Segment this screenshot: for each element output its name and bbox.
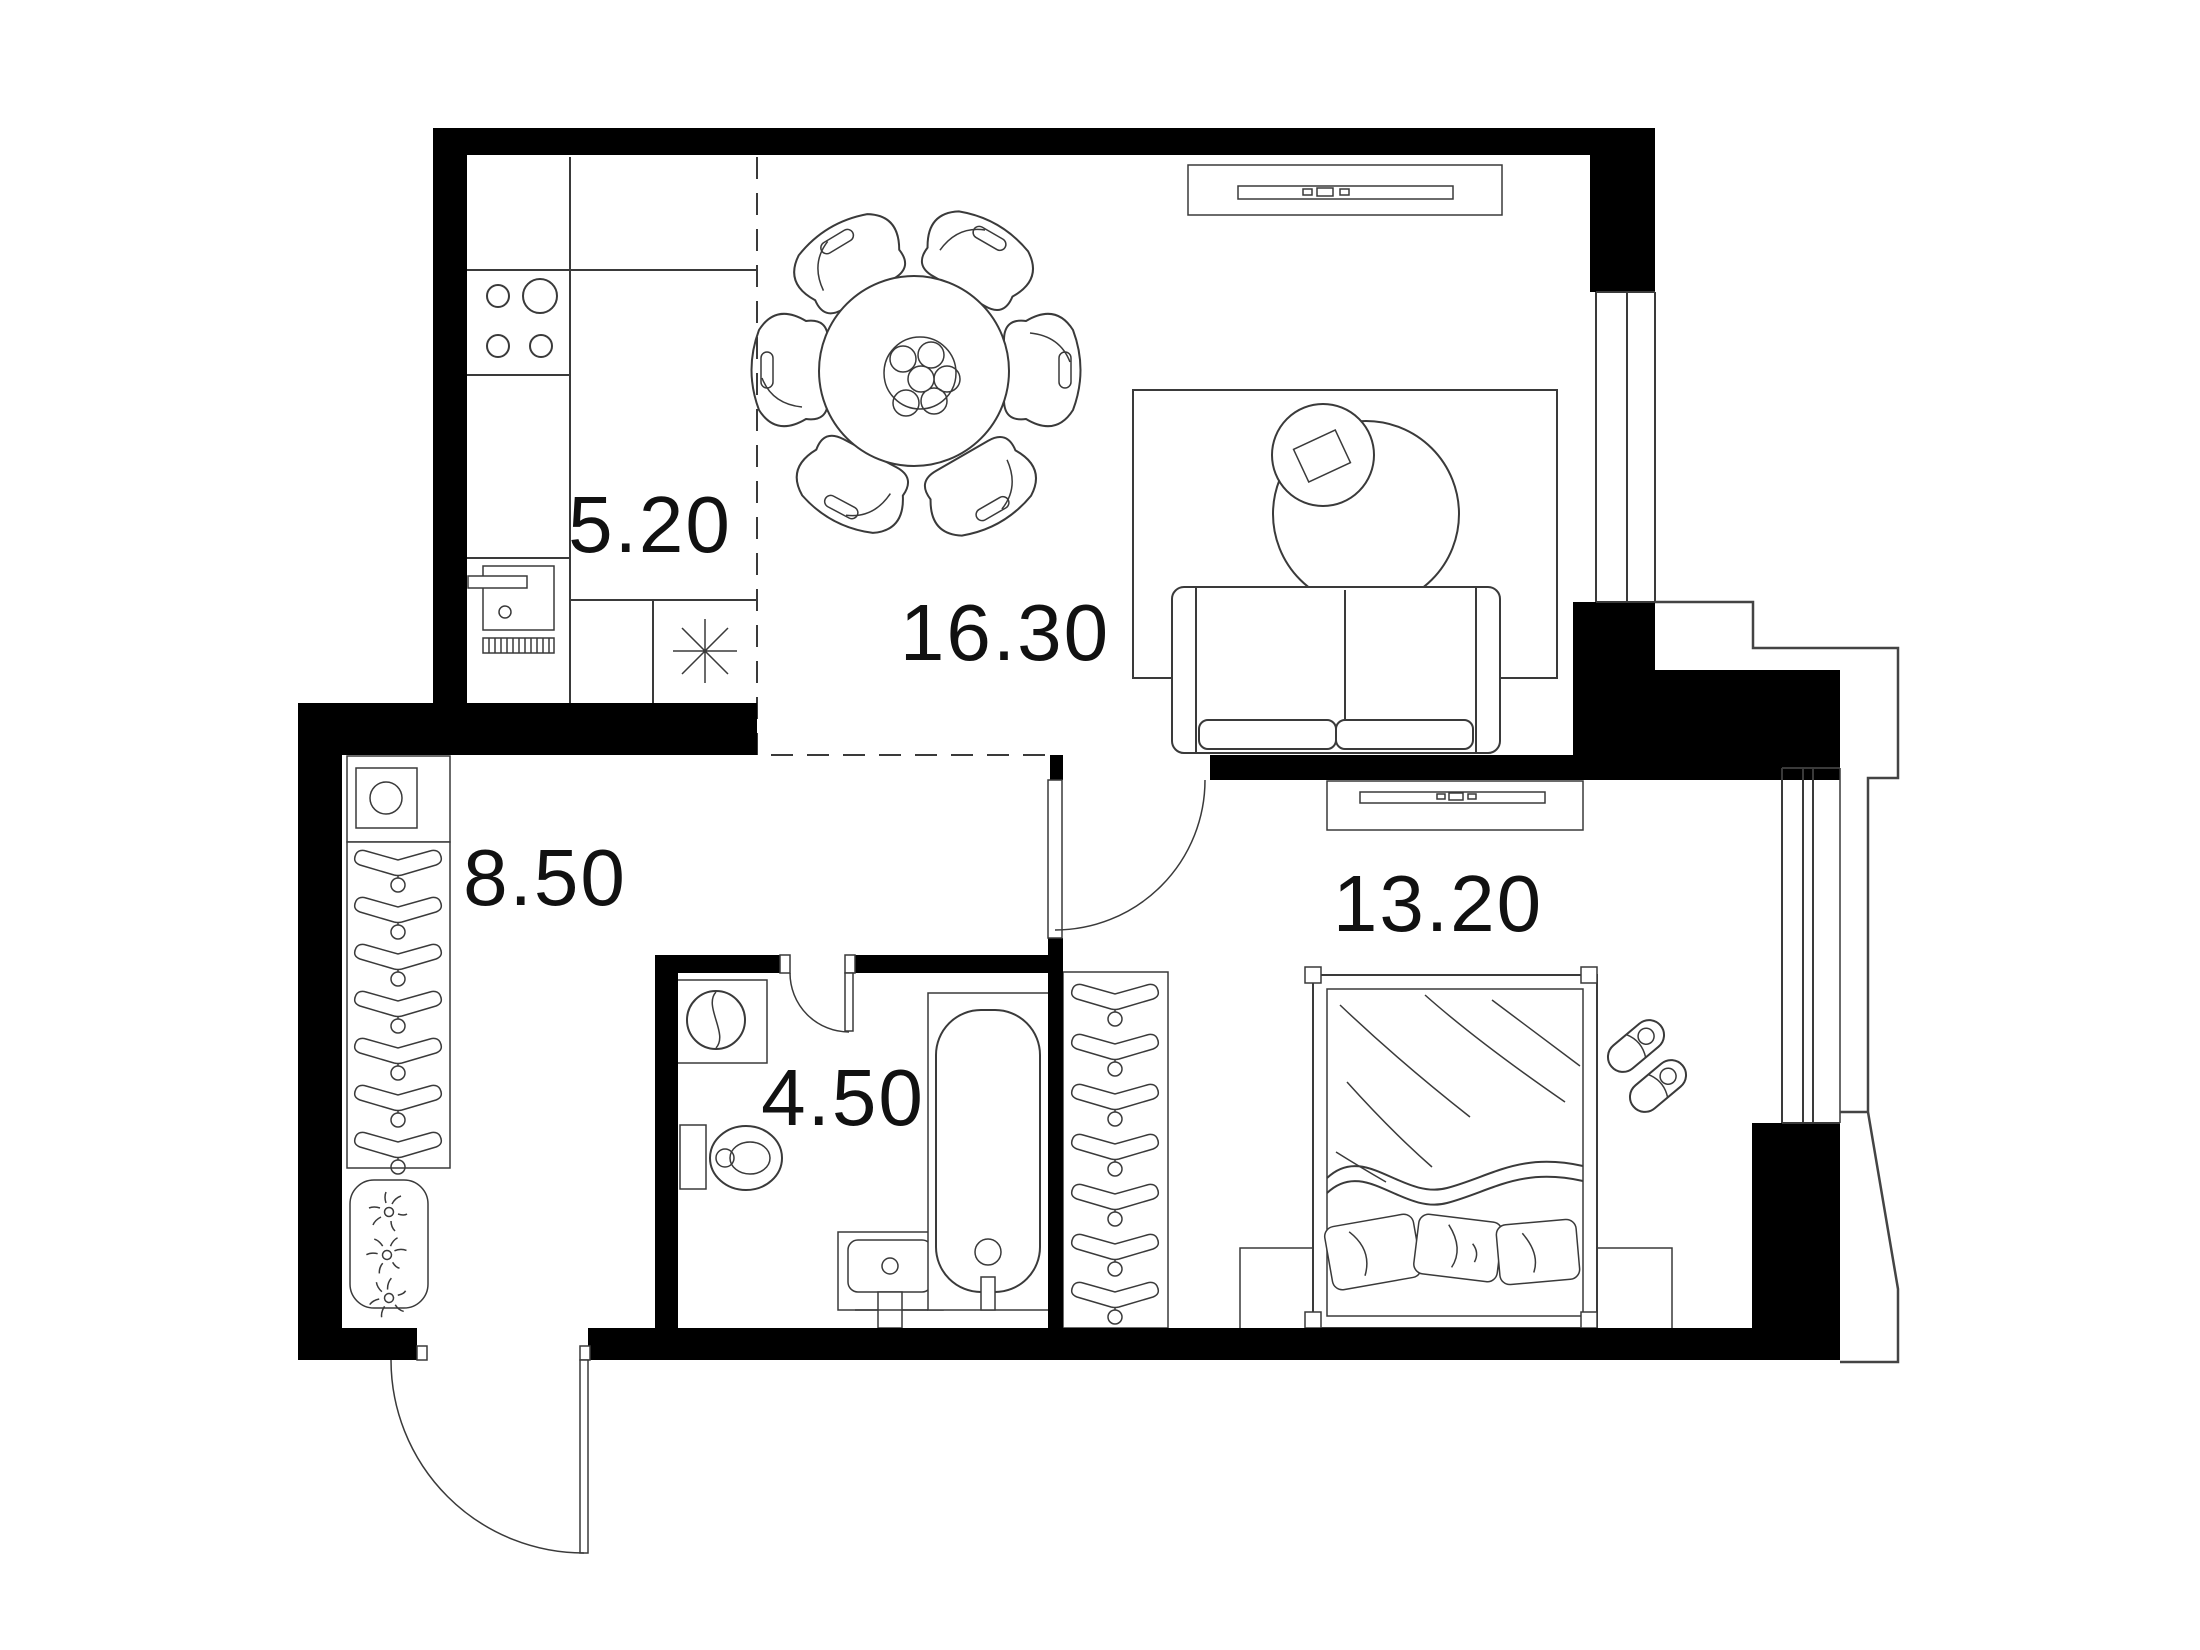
room-label-living-dining: 16.30	[900, 588, 1110, 677]
hallway-cabinet	[347, 756, 450, 842]
oven-icon	[468, 566, 554, 653]
tv-console-bedroom	[1327, 781, 1583, 830]
floor-plan-drawing: 5.20 16.30 8.50 4.50 13.20	[0, 0, 2200, 1650]
room-label-bedroom: 13.20	[1333, 859, 1543, 948]
sofa	[1172, 587, 1500, 753]
bed	[1240, 967, 1672, 1330]
entrance-door	[391, 1346, 590, 1553]
living-room-window	[1596, 292, 1655, 602]
chair-icon	[752, 314, 829, 426]
hallway-wardrobe	[347, 842, 450, 1174]
room-label-kitchen: 5.20	[568, 480, 732, 569]
pillow-icon	[1413, 1213, 1504, 1283]
stove-icon	[487, 279, 557, 357]
door-mat	[350, 1180, 428, 1324]
dining-set	[752, 197, 1081, 550]
bedroom-window	[1782, 768, 1840, 1123]
chair-icon	[1004, 314, 1081, 426]
tv-console-living	[1188, 165, 1502, 215]
bathroom-door	[780, 955, 855, 1032]
bathtub-icon	[928, 993, 1050, 1310]
sparkle-icon	[673, 619, 737, 683]
pillow-icon	[1496, 1219, 1581, 1286]
room-label-bathroom: 4.50	[761, 1053, 925, 1142]
washing-machine-icon	[670, 980, 767, 1063]
bedroom-door	[1048, 780, 1205, 938]
bedroom-wardrobe	[1063, 972, 1168, 1328]
floor-plan-page: 5.20 16.30 8.50 4.50 13.20	[0, 0, 2200, 1650]
slippers-icon	[1602, 1014, 1692, 1118]
room-label-hallway: 8.50	[463, 833, 627, 922]
